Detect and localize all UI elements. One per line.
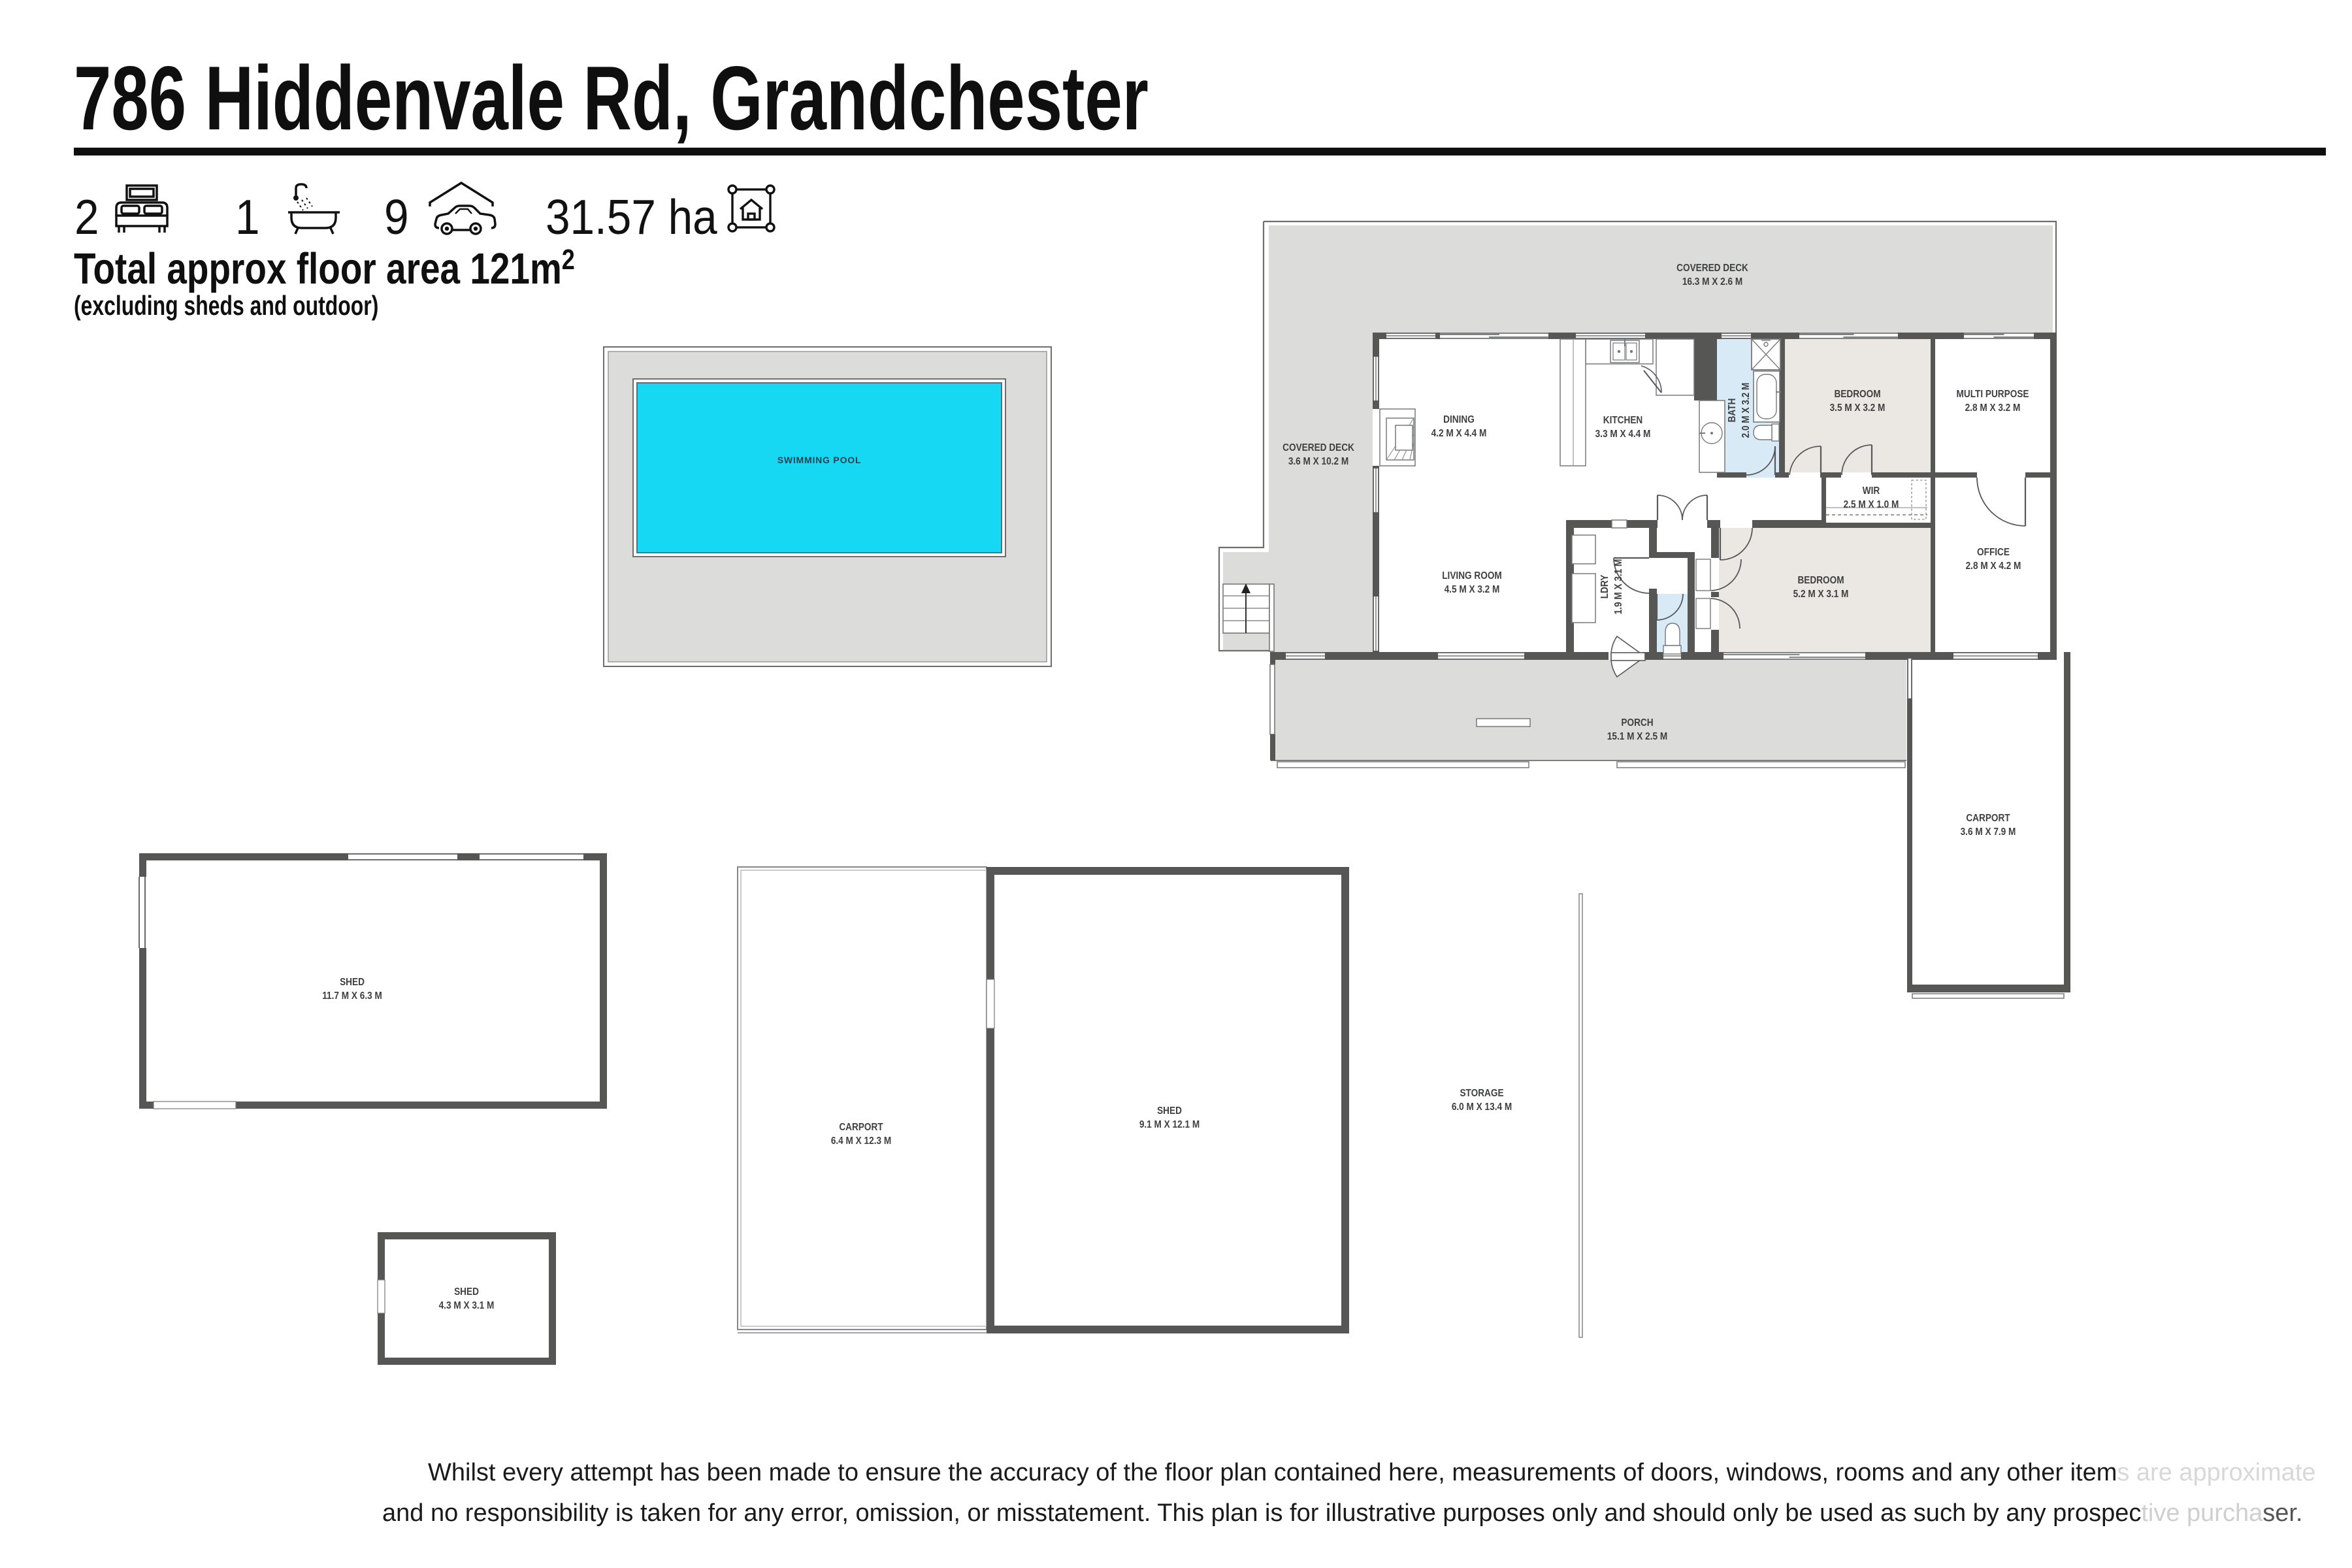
svg-text:LIVING ROOM: LIVING ROOM xyxy=(1442,570,1502,581)
svg-text:SHED: SHED xyxy=(1157,1105,1182,1117)
svg-text:4.5 M X 3.2 M: 4.5 M X 3.2 M xyxy=(1445,584,1500,595)
svg-text:2.0 M X 3.2 M: 2.0 M X 3.2 M xyxy=(1740,383,1752,438)
svg-text:COVERED DECK: COVERED DECK xyxy=(1676,263,1748,274)
svg-text:SWIMMING POOL: SWIMMING POOL xyxy=(777,455,862,465)
svg-text:6.4 M X 12.3 M: 6.4 M X 12.3 M xyxy=(831,1135,891,1147)
svg-text:WIR: WIR xyxy=(1863,485,1880,497)
svg-text:1.9 M X 3.1 M: 1.9 M X 3.1 M xyxy=(1613,559,1624,615)
svg-text:2.8 M X 3.2 M: 2.8 M X 3.2 M xyxy=(1965,402,2021,414)
svg-text:11.7 M X 6.3 M: 11.7 M X 6.3 M xyxy=(322,990,382,1002)
svg-text:MULTI PURPOSE: MULTI PURPOSE xyxy=(1957,389,2029,400)
svg-text:4.3 M X 3.1 M: 4.3 M X 3.1 M xyxy=(439,1300,495,1311)
svg-text:3.6 M X 7.9 M: 3.6 M X 7.9 M xyxy=(1961,826,2016,838)
svg-text:3.3 M X 4.4 M: 3.3 M X 4.4 M xyxy=(1595,429,1651,440)
svg-text:SHED: SHED xyxy=(340,977,365,988)
svg-text:2.5 M X 1.0 M: 2.5 M X 1.0 M xyxy=(1844,499,1899,510)
svg-text:STORAGE: STORAGE xyxy=(1460,1088,1503,1099)
svg-text:3.5 M X 3.2 M: 3.5 M X 3.2 M xyxy=(1830,402,1886,414)
svg-text:2.8 M X 4.2 M: 2.8 M X 4.2 M xyxy=(1966,561,2021,572)
svg-text:SHED: SHED xyxy=(454,1286,479,1298)
svg-text:5.2 M X 3.1 M: 5.2 M X 3.1 M xyxy=(1793,589,1849,600)
svg-text:BEDROOM: BEDROOM xyxy=(1797,575,1844,586)
svg-text:9.1 M X 12.1 M: 9.1 M X 12.1 M xyxy=(1139,1119,1200,1130)
svg-text:2: 2 xyxy=(74,190,99,245)
svg-text:Whilst every attempt has been: Whilst every attempt has been made to en… xyxy=(428,1459,2316,1486)
svg-text:9: 9 xyxy=(384,190,409,245)
svg-text:31.57 ha: 31.57 ha xyxy=(546,190,717,245)
svg-text:15.1 M X 2.5 M: 15.1 M X 2.5 M xyxy=(1607,731,1667,742)
svg-text:1: 1 xyxy=(235,190,260,245)
svg-text:PORCH: PORCH xyxy=(1621,717,1653,728)
svg-text:COVERED DECK: COVERED DECK xyxy=(1282,442,1354,453)
svg-text:BATH: BATH xyxy=(1727,399,1738,423)
svg-text:LDRY: LDRY xyxy=(1599,574,1610,598)
svg-text:4.2 M X 4.4 M: 4.2 M X 4.4 M xyxy=(1431,428,1487,439)
svg-text:BEDROOM: BEDROOM xyxy=(1834,389,1880,400)
svg-text:(excluding sheds and outdoor): (excluding sheds and outdoor) xyxy=(74,290,378,321)
svg-text:Total approx floor area 121m2: Total approx floor area 121m2 xyxy=(74,244,575,293)
svg-text:6.0 M X 13.4 M: 6.0 M X 13.4 M xyxy=(1452,1102,1512,1113)
svg-text:3.6 M X 10.2 M: 3.6 M X 10.2 M xyxy=(1288,456,1348,467)
svg-text:DINING: DINING xyxy=(1443,414,1475,425)
svg-text:16.3 M X 2.6 M: 16.3 M X 2.6 M xyxy=(1682,276,1742,287)
svg-text:OFFICE: OFFICE xyxy=(1977,547,2010,558)
svg-text:CARPORT: CARPORT xyxy=(839,1122,883,1133)
svg-text:786 Hiddenvale Rd, Grandcheste: 786 Hiddenvale Rd, Grandchester xyxy=(74,47,1149,149)
svg-text:and no responsibility is taken: and no responsibility is taken for any e… xyxy=(382,1499,2302,1527)
svg-text:KITCHEN: KITCHEN xyxy=(1603,415,1643,426)
svg-text:CARPORT: CARPORT xyxy=(1966,813,2010,824)
